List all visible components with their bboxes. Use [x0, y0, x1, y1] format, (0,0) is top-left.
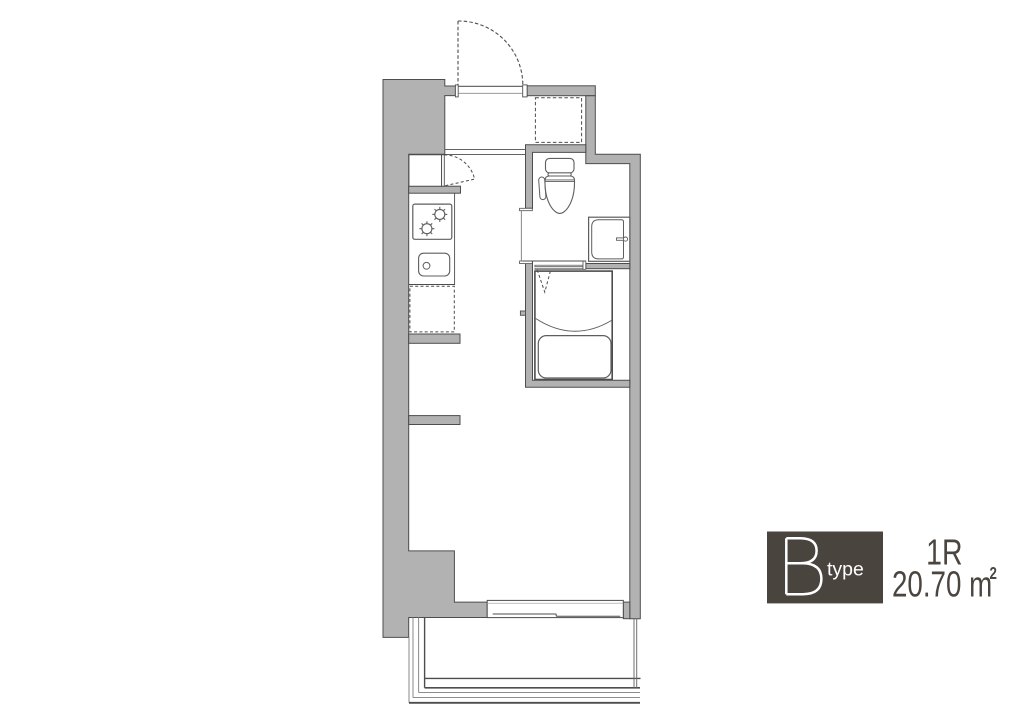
svg-text:20.70 m2: 20.70 m2 — [892, 564, 997, 605]
svg-text:type: type — [827, 559, 864, 581]
